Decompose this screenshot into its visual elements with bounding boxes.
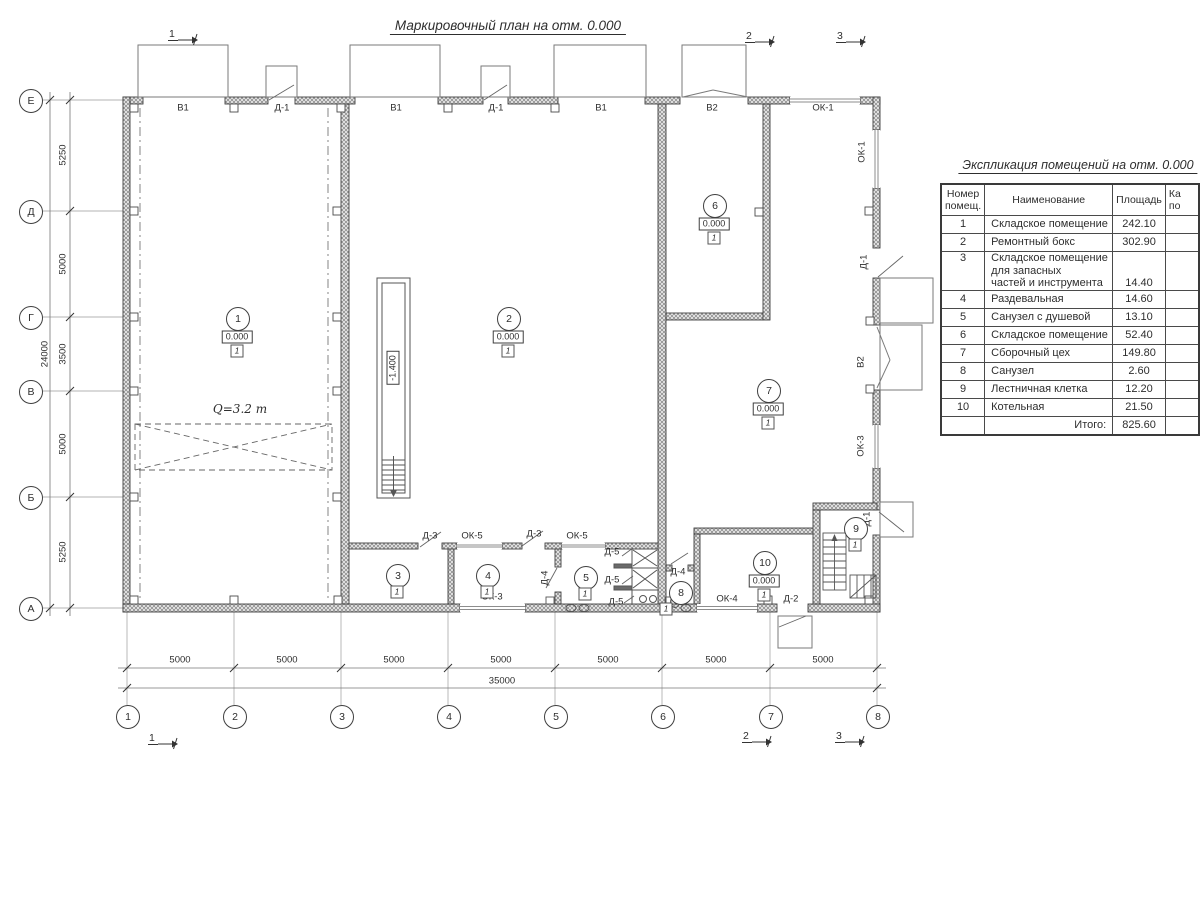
col-header-category: Капо	[1165, 184, 1199, 216]
dim-label: 5000	[383, 655, 404, 666]
table-row: 2Ремонтный бокс302.90	[941, 234, 1199, 252]
table-cell: 1	[941, 216, 985, 234]
floor-type-mark-room-7: 1	[762, 417, 775, 430]
plan-overlay: В1Д-1В1Д-1В1В2ОК-1ОК-1Д-1В2ОК-3Д-1ОК-3ОК…	[0, 0, 1200, 900]
col-header-name: Наименование	[985, 184, 1113, 216]
dim-total-label: 35000	[489, 676, 515, 687]
section-arrow-icon	[158, 737, 181, 750]
mark-label-ОК-4: ОК-4	[716, 594, 737, 605]
floor-type-mark-room-2: 1	[502, 345, 515, 358]
col-header-area: Площадь	[1113, 184, 1166, 216]
table-cell: 4	[941, 290, 985, 308]
table-cell: 2	[941, 234, 985, 252]
table-cell: 149.80	[1113, 344, 1166, 362]
table-row: 7Сборочный цех149.80	[941, 344, 1199, 362]
table-cell: Лестничная клетка	[985, 380, 1113, 398]
table-cell: 52.40	[1113, 326, 1166, 344]
mark-label-Д-4: Д-4	[540, 571, 551, 586]
section-mark-2: 2	[745, 30, 778, 48]
table-cell: 6	[941, 326, 985, 344]
mark-label-Д-2: Д-2	[784, 594, 799, 605]
mark-label-Д-5: Д-5	[605, 575, 620, 586]
table-row: 10Котельная21.50	[941, 398, 1199, 416]
floor-type-mark-room-1: 1	[231, 345, 244, 358]
room-number-3: 3	[386, 564, 410, 588]
table-cell: Сборочный цех	[985, 344, 1113, 362]
pit-depth-label: -1.400	[387, 351, 400, 385]
section-arrow-icon	[845, 735, 868, 748]
mark-label-В1: В1	[390, 103, 402, 114]
drawing-sheet: Маркировочный план на отм. 0.000 Эксплик…	[0, 0, 1200, 900]
table-cell: 12.20	[1113, 380, 1166, 398]
dim-label: 5000	[58, 253, 69, 274]
mark-label-В2: В2	[706, 103, 718, 114]
dim-label: 5000	[705, 655, 726, 666]
mark-label-В1: В1	[595, 103, 607, 114]
table-cell	[1165, 290, 1199, 308]
room-number-6: 6	[703, 194, 727, 218]
table-cell	[1165, 380, 1199, 398]
axis-circle-1: 1	[116, 705, 140, 729]
floor-type-mark-room-3: 1	[391, 586, 404, 599]
table-cell: Раздевальная	[985, 290, 1113, 308]
table-cell: 10	[941, 398, 985, 416]
section-number: 3	[836, 30, 846, 43]
table-cell	[1165, 344, 1199, 362]
room-number-4: 4	[476, 564, 500, 588]
table-row: 6Складское помещение52.40	[941, 326, 1199, 344]
mark-label-Д-3: Д-3	[527, 529, 542, 540]
axis-circle-А: А	[19, 597, 43, 621]
elevation-mark-room-2: 0.000	[493, 331, 524, 344]
table-cell: 9	[941, 380, 985, 398]
axis-circle-5: 5	[544, 705, 568, 729]
table-cell	[1165, 362, 1199, 380]
section-number: 2	[745, 30, 755, 43]
table-cell: 2.60	[1113, 362, 1166, 380]
table-cell: 7	[941, 344, 985, 362]
room-number-7: 7	[757, 379, 781, 403]
table-row: 4Раздевальная14.60	[941, 290, 1199, 308]
table-cell	[941, 416, 985, 435]
axis-circle-8: 8	[866, 705, 890, 729]
table-cell: Складское помещение	[985, 216, 1113, 234]
table-cell: 8	[941, 362, 985, 380]
axis-circle-3: 3	[330, 705, 354, 729]
dim-label: 5000	[169, 655, 190, 666]
section-number: 3	[835, 730, 845, 743]
table-cell: 14.60	[1113, 290, 1166, 308]
mark-label-ОК-3: ОК-3	[856, 435, 867, 456]
section-mark-2: 2	[742, 730, 775, 748]
dim-label: 3500	[58, 343, 69, 364]
section-mark-3: 3	[836, 30, 869, 48]
table-row: 1Складское помещение242.10	[941, 216, 1199, 234]
table-cell	[1165, 252, 1199, 291]
table-cell: 302.90	[1113, 234, 1166, 252]
axis-circle-2: 2	[223, 705, 247, 729]
axis-circle-7: 7	[759, 705, 783, 729]
table-cell: 14.40	[1113, 252, 1166, 291]
section-number: 2	[742, 730, 752, 743]
dim-label: 5000	[597, 655, 618, 666]
room-number-1: 1	[226, 307, 250, 331]
table-cell	[1165, 216, 1199, 234]
floor-type-mark-room-8: 1	[660, 603, 673, 616]
room-number-2: 2	[497, 307, 521, 331]
section-arrow-icon	[755, 35, 778, 48]
dim-label: 5250	[58, 541, 69, 562]
total-label: Итого:	[985, 416, 1113, 435]
mark-label-Д-1: Д-1	[859, 255, 870, 270]
mark-label-Д-4: Д-4	[671, 567, 686, 578]
mark-label-В2: В2	[856, 356, 867, 368]
room-number-8: 8	[669, 581, 693, 605]
table-row: 9Лестничная клетка12.20	[941, 380, 1199, 398]
table-cell: 21.50	[1113, 398, 1166, 416]
explication-table: Номерпомещ.НаименованиеПлощадьКапо1Склад…	[940, 183, 1200, 436]
floor-type-mark-room-10: 1	[758, 589, 771, 602]
section-number: 1	[168, 28, 178, 41]
dim-label: 5000	[276, 655, 297, 666]
mark-label-Д-5: Д-5	[609, 597, 624, 608]
elevation-mark-room-7: 0.000	[753, 403, 784, 416]
mark-label-ОК-1: ОК-1	[812, 103, 833, 114]
table-cell	[1165, 326, 1199, 344]
table-cell: Складское помещение для запасных частей …	[985, 252, 1113, 291]
section-number: 1	[148, 732, 158, 745]
mark-label-ОК-5: ОК-5	[566, 531, 587, 542]
table-row: 5Санузел с душевой13.10	[941, 308, 1199, 326]
elevation-mark-room-10: 0.000	[749, 575, 780, 588]
table-cell	[1165, 398, 1199, 416]
dim-total-label: 24000	[40, 341, 51, 367]
section-mark-3: 3	[835, 730, 868, 748]
table-row: 8Санузел2.60	[941, 362, 1199, 380]
table-cell: Складское помещение	[985, 326, 1113, 344]
table-cell: 3	[941, 252, 985, 291]
floor-type-mark-room-4: 1	[481, 586, 494, 599]
dim-label: 5000	[812, 655, 833, 666]
axis-circle-Д: Д	[19, 200, 43, 224]
table-cell	[1165, 234, 1199, 252]
floor-type-mark-room-9: 1	[849, 539, 862, 552]
crane-capacity-label: Q=3.2 т	[213, 402, 267, 416]
elevation-mark-room-1: 0.000	[222, 331, 253, 344]
table-cell: 13.10	[1113, 308, 1166, 326]
axis-circle-Б: Б	[19, 486, 43, 510]
section-arrow-icon	[752, 735, 775, 748]
table-cell	[1165, 416, 1199, 435]
table-cell: Санузел с душевой	[985, 308, 1113, 326]
dim-label: 5000	[58, 433, 69, 454]
mark-label-Д-1: Д-1	[275, 103, 290, 114]
mark-label-В1: В1	[177, 103, 189, 114]
axis-circle-В: В	[19, 380, 43, 404]
axis-circle-6: 6	[651, 705, 675, 729]
mark-label-ОК-1: ОК-1	[857, 141, 868, 162]
mark-label-Д-3: Д-3	[423, 531, 438, 542]
col-header-number: Номерпомещ.	[941, 184, 985, 216]
room-number-5: 5	[574, 566, 598, 590]
dim-label: 5250	[58, 144, 69, 165]
table-total-row: Итого:825.60	[941, 416, 1199, 435]
section-arrow-icon	[846, 35, 869, 48]
section-mark-1: 1	[148, 732, 181, 750]
mark-label-Д-5: Д-5	[605, 547, 620, 558]
floor-type-mark-room-6: 1	[708, 232, 721, 245]
mark-label-ОК-5: ОК-5	[461, 531, 482, 542]
table-cell: 5	[941, 308, 985, 326]
total-value: 825.60	[1113, 416, 1166, 435]
section-arrow-icon	[178, 33, 201, 46]
table-row: 3Складское помещение для запасных частей…	[941, 252, 1199, 291]
axis-circle-Е: Е	[19, 89, 43, 113]
axis-circle-4: 4	[437, 705, 461, 729]
axis-circle-Г: Г	[19, 306, 43, 330]
room-number-10: 10	[753, 551, 777, 575]
elevation-mark-room-6: 0.000	[699, 218, 730, 231]
floor-type-mark-room-5: 1	[579, 588, 592, 601]
table-cell: Санузел	[985, 362, 1113, 380]
room-number-9: 9	[844, 517, 868, 541]
table-cell: Котельная	[985, 398, 1113, 416]
dim-label: 5000	[490, 655, 511, 666]
mark-label-Д-1: Д-1	[489, 103, 504, 114]
table-cell	[1165, 308, 1199, 326]
table-cell: 242.10	[1113, 216, 1166, 234]
table-cell: Ремонтный бокс	[985, 234, 1113, 252]
section-mark-1: 1	[168, 28, 201, 46]
